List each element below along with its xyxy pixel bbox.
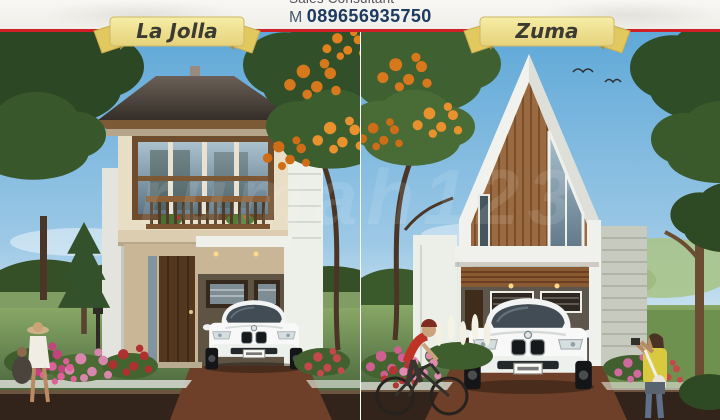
downlight xyxy=(254,252,259,257)
upper-window-wall xyxy=(132,136,274,220)
beam-shadow xyxy=(455,262,599,267)
downlight xyxy=(509,284,514,289)
house-render-zuma xyxy=(360,30,720,420)
ribbon-banner-la-jolla: La Jolla xyxy=(92,9,262,55)
carport-beam xyxy=(196,236,292,247)
garden-curb xyxy=(306,380,360,388)
wood-slat-band xyxy=(461,267,589,287)
ribbon-label: La Jolla xyxy=(136,19,218,43)
white-column xyxy=(587,220,601,366)
real-estate-flyer: Sales Consultant M 089656935750 xyxy=(0,0,720,420)
carport-beam xyxy=(455,246,599,262)
sales-contact-block: Sales Consultant M 089656935750 xyxy=(289,0,432,26)
ribbon-label: Zuma xyxy=(514,19,578,43)
entry-door xyxy=(159,256,195,362)
house-render-la-jolla xyxy=(0,30,360,420)
door-sidelight xyxy=(148,256,157,362)
downlight xyxy=(555,284,560,289)
ribbon-banner-zuma: Zuma xyxy=(462,9,632,55)
phone-line: M 089656935750 xyxy=(289,8,432,26)
phone-number: 089656935750 xyxy=(307,6,432,26)
eave-shadow xyxy=(106,129,290,136)
phone-prefix: M xyxy=(289,9,302,26)
garden-curb xyxy=(0,380,192,388)
downlight xyxy=(214,252,219,257)
